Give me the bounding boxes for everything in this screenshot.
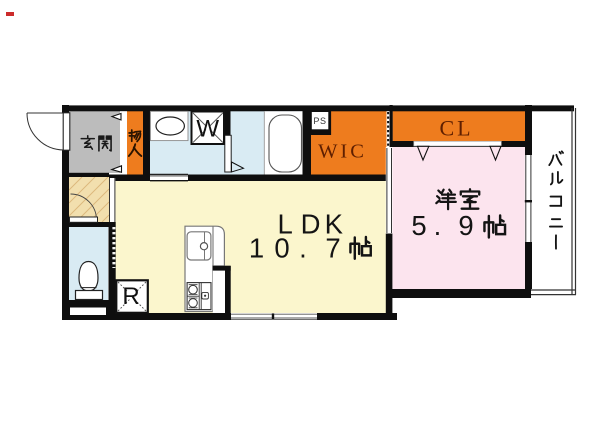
svg-text:5: 5 — [411, 210, 426, 241]
svg-text:R: R — [122, 283, 139, 310]
svg-text:CL: CL — [439, 116, 473, 141]
svg-text:1: 1 — [249, 233, 264, 264]
svg-text:0: 0 — [274, 233, 289, 264]
svg-text:.: . — [299, 233, 307, 264]
svg-text:WIC: WIC — [318, 141, 367, 163]
svg-text:9: 9 — [458, 210, 473, 241]
svg-text:PS: PS — [313, 116, 326, 126]
svg-text:7: 7 — [325, 233, 340, 264]
svg-text:W: W — [196, 115, 219, 142]
svg-text:.: . — [434, 210, 442, 241]
